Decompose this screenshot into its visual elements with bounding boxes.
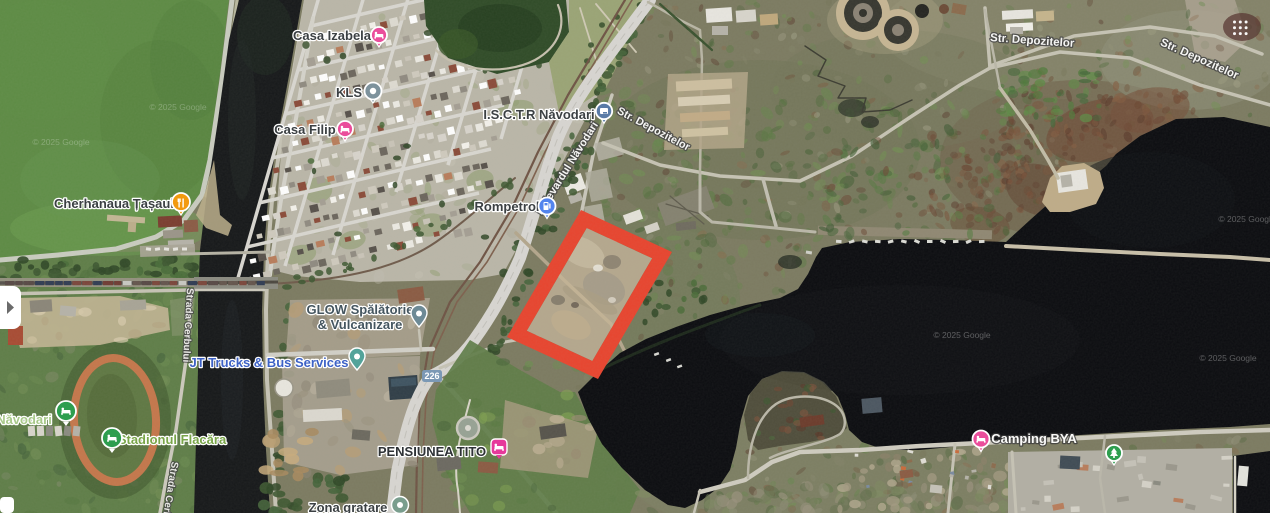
- svg-text:© 2025 Google: © 2025 Google: [32, 137, 90, 147]
- svg-text:Casa Izabela: Casa Izabela: [293, 28, 372, 43]
- svg-text:Zona gratare: Zona gratare: [309, 500, 388, 513]
- svg-text:Camping BYA: Camping BYA: [991, 431, 1077, 446]
- svg-text:& Vulcanizare: & Vulcanizare: [318, 317, 403, 332]
- svg-text:Năvodari: Năvodari: [0, 412, 52, 427]
- svg-text:JT Trucks & Bus Services: JT Trucks & Bus Services: [190, 355, 349, 370]
- svg-text:PENSIUNEA TITO: PENSIUNEA TITO: [378, 444, 486, 459]
- svg-text:226: 226: [424, 371, 439, 381]
- svg-text:I.S.C.T.R Năvodari: I.S.C.T.R Năvodari: [483, 107, 594, 122]
- svg-text:KLS: KLS: [336, 85, 362, 100]
- svg-text:Stadionul Flacăra: Stadionul Flacăra: [118, 432, 227, 447]
- svg-text:© 2025 Google: © 2025 Google: [149, 102, 207, 112]
- svg-text:Casa Filip: Casa Filip: [274, 122, 335, 137]
- svg-text:Cherhanaua Țașaul: Cherhanaua Țașaul: [54, 196, 174, 211]
- svg-text:Rompetrol: Rompetrol: [475, 199, 540, 214]
- svg-text:© 2025 Google: © 2025 Google: [1218, 214, 1270, 224]
- svg-text:© 2025 Google: © 2025 Google: [933, 330, 991, 340]
- svg-text:GLOW Spălătorie: GLOW Spălătorie: [307, 302, 414, 317]
- svg-text:© 2025 Google: © 2025 Google: [1199, 353, 1257, 363]
